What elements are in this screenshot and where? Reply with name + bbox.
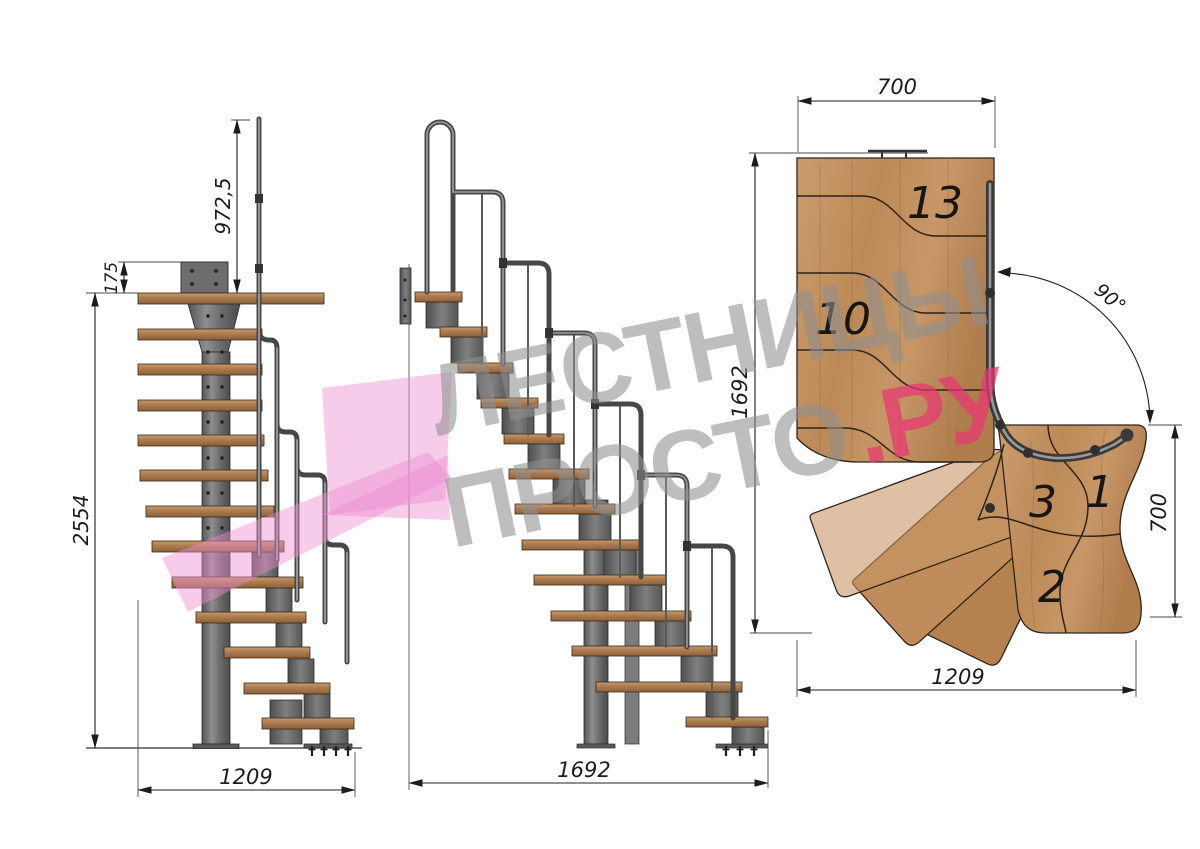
tread: [138, 400, 262, 411]
tread: [415, 292, 462, 302]
tread: [244, 683, 330, 694]
step-label-3: 3: [1029, 477, 1057, 528]
dim-railing-height: 972,5: [211, 177, 235, 234]
top-mount-plate: [181, 262, 228, 293]
rail-joint: [683, 541, 691, 551]
dim-plate-offset: 175: [102, 262, 122, 294]
dim-plan-right-width: 700: [1147, 493, 1171, 533]
rail-joint: [255, 264, 263, 273]
turn-angle-arc: [1003, 273, 1150, 420]
drawing-canvas: 972,5 175 2554 1209: [0, 0, 1200, 849]
column-base-plate: [193, 744, 239, 749]
tread: [572, 646, 717, 656]
rail-joint: [985, 503, 995, 513]
tread: [224, 647, 310, 658]
step-label-1: 1: [1086, 467, 1114, 518]
rail-joint: [255, 194, 263, 203]
tread: [138, 364, 262, 375]
tread: [140, 470, 268, 481]
tread: [138, 329, 262, 340]
dim-total-run: 1692: [557, 758, 610, 782]
tread: [146, 506, 274, 517]
front-elevation-view: 972,5 175 2554 1209: [69, 119, 362, 797]
dim-plan-bottom-width: 1209: [931, 665, 984, 689]
tread: [534, 575, 666, 585]
tread: [596, 682, 742, 692]
dim-turn-angle: 90°: [1090, 279, 1130, 318]
tread: [686, 717, 768, 727]
step-label-13: 13: [907, 178, 963, 229]
handrail-end-cap: [1121, 429, 1134, 442]
tread: [196, 612, 306, 623]
rail-joint: [1090, 445, 1100, 455]
dim-front-width: 1209: [219, 765, 272, 789]
dim-total-height: 2554: [69, 495, 93, 546]
tread: [138, 435, 264, 446]
rail-joint: [499, 258, 507, 268]
tread: [551, 611, 691, 621]
tread: [262, 718, 354, 729]
tread: [138, 293, 324, 304]
dim-plan-top-width: 700: [877, 75, 917, 99]
step-label-2: 2: [1038, 562, 1066, 613]
rail-joint: [1023, 448, 1033, 458]
staircase-drawing: 972,5 175 2554 1209: [0, 0, 1200, 849]
